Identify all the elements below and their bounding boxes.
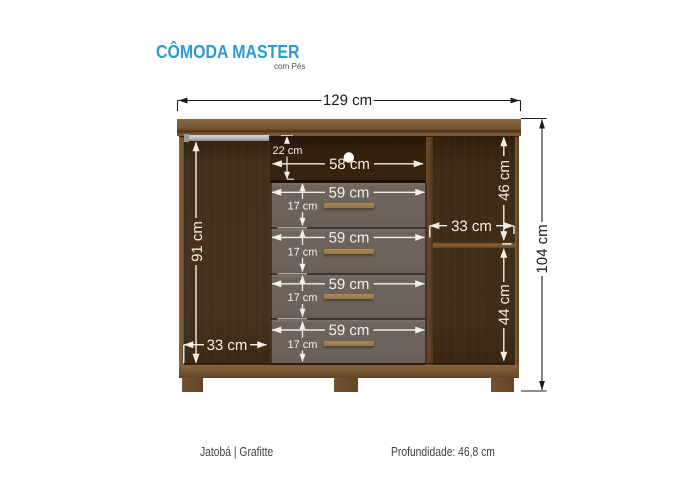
svg-text:59 cm: 59 cm <box>329 322 370 339</box>
svg-text:59 cm: 59 cm <box>329 184 370 201</box>
svg-text:17 cm: 17 cm <box>288 200 318 212</box>
svg-text:17 cm: 17 cm <box>288 339 318 351</box>
svg-text:33 cm: 33 cm <box>451 218 492 235</box>
svg-text:17 cm: 17 cm <box>288 246 318 258</box>
svg-text:91 cm: 91 cm <box>189 221 206 262</box>
svg-text:59 cm: 59 cm <box>329 276 370 293</box>
svg-text:104 cm: 104 cm <box>534 224 551 273</box>
svg-text:22 cm: 22 cm <box>273 145 303 157</box>
svg-text:59 cm: 59 cm <box>329 230 370 247</box>
svg-text:44 cm: 44 cm <box>496 284 513 325</box>
svg-text:129 cm: 129 cm <box>323 92 372 109</box>
svg-text:33 cm: 33 cm <box>207 337 248 354</box>
svg-text:46 cm: 46 cm <box>496 160 513 201</box>
svg-text:17 cm: 17 cm <box>288 292 318 304</box>
